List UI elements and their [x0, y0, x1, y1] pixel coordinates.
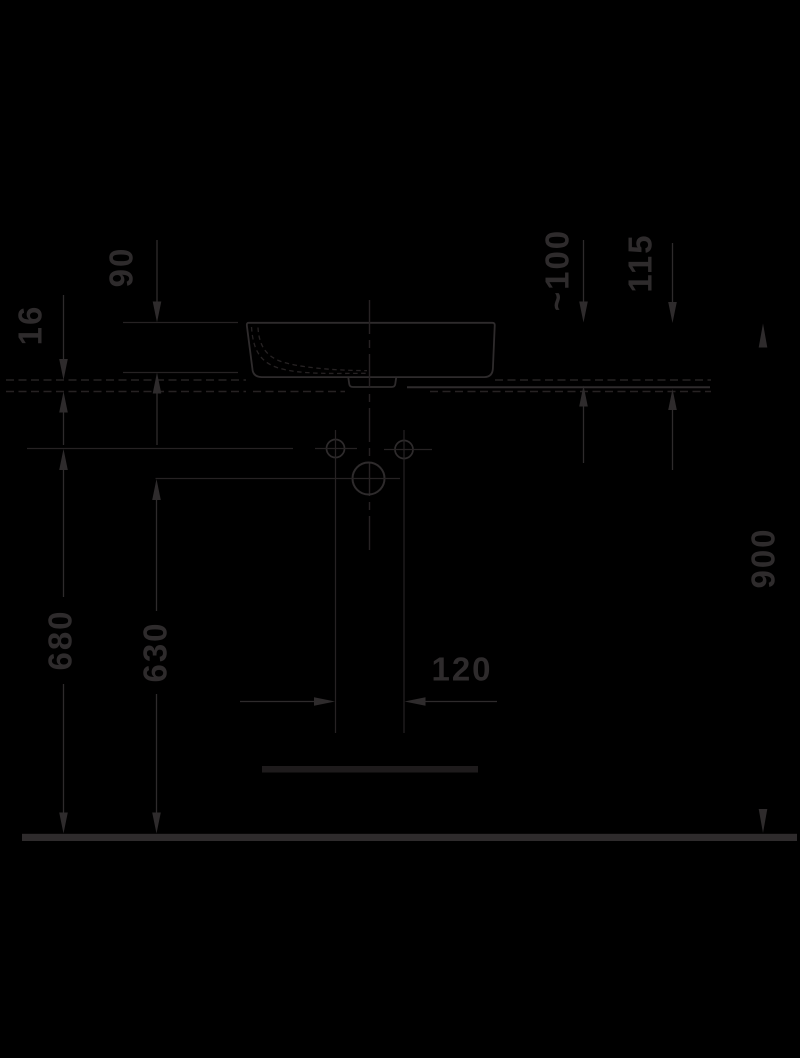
- wall-holes: [27, 430, 432, 733]
- dim-label-100: ~100: [541, 229, 574, 311]
- floor-line: [22, 834, 797, 841]
- dim-label-630: 630: [139, 621, 172, 682]
- dim-label-680: 680: [44, 609, 77, 670]
- technical-drawing: [0, 0, 800, 1058]
- dim-115-lines: [668, 243, 677, 470]
- dim-label-115: 115: [624, 233, 657, 292]
- dim-label-16: 16: [14, 305, 47, 346]
- dim-label-90: 90: [105, 247, 138, 288]
- dim-90-lines: [123, 240, 238, 445]
- countertop-lines: [6, 380, 711, 392]
- dim-16-lines: [59, 295, 68, 445]
- faint-shelf-line: [262, 766, 478, 773]
- drain-boss: [348, 378, 396, 388]
- basin-outline: [247, 323, 495, 387]
- dim-label-900: 900: [747, 527, 780, 588]
- dim-120-lines: [240, 697, 497, 706]
- dim-100-lines: [579, 240, 588, 463]
- bowl-hidden-edge-outer: [252, 327, 369, 373]
- drawing-canvas: 90 16 ~100 115 900 680 630 120: [0, 0, 800, 1058]
- dim-label-120: 120: [431, 653, 492, 686]
- bowl-hidden-edge-inner: [258, 328, 367, 371]
